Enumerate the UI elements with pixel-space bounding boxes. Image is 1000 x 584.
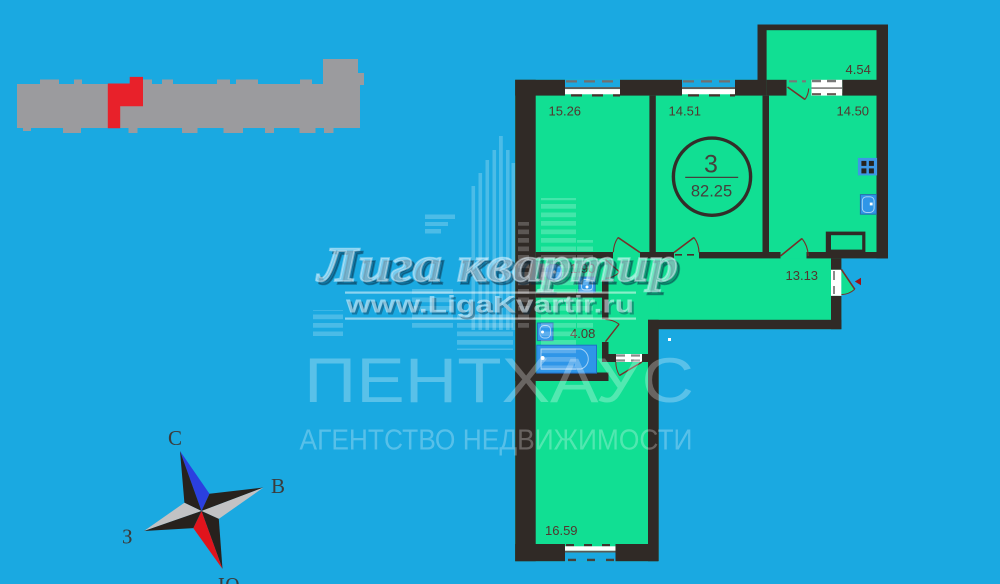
svg-text:16.59: 16.59: [545, 523, 578, 538]
svg-text:4.54: 4.54: [846, 62, 871, 77]
svg-text:3: 3: [704, 151, 718, 179]
svg-text:ПЕНТХАУС: ПЕНТХАУС: [304, 346, 694, 416]
svg-text:www.LigaKvartir.ru: www.LigaKvartir.ru: [345, 292, 634, 319]
svg-text:13.13: 13.13: [786, 268, 819, 283]
svg-text:АГЕНТСТВО НЕДВИЖИМОСТИ: АГЕНТСТВО НЕДВИЖИМОСТИ: [300, 425, 693, 457]
svg-text:82.25: 82.25: [691, 183, 732, 201]
svg-text:С: С: [168, 426, 182, 450]
svg-text:Ю: Ю: [218, 573, 240, 584]
svg-text:15.26: 15.26: [549, 104, 582, 119]
svg-text:14.51: 14.51: [669, 104, 702, 119]
svg-text:В: В: [271, 474, 285, 498]
svg-text:З: З: [122, 525, 133, 549]
svg-text:Лига квартир: Лига квартир: [316, 236, 678, 292]
svg-text:14.50: 14.50: [837, 104, 870, 119]
